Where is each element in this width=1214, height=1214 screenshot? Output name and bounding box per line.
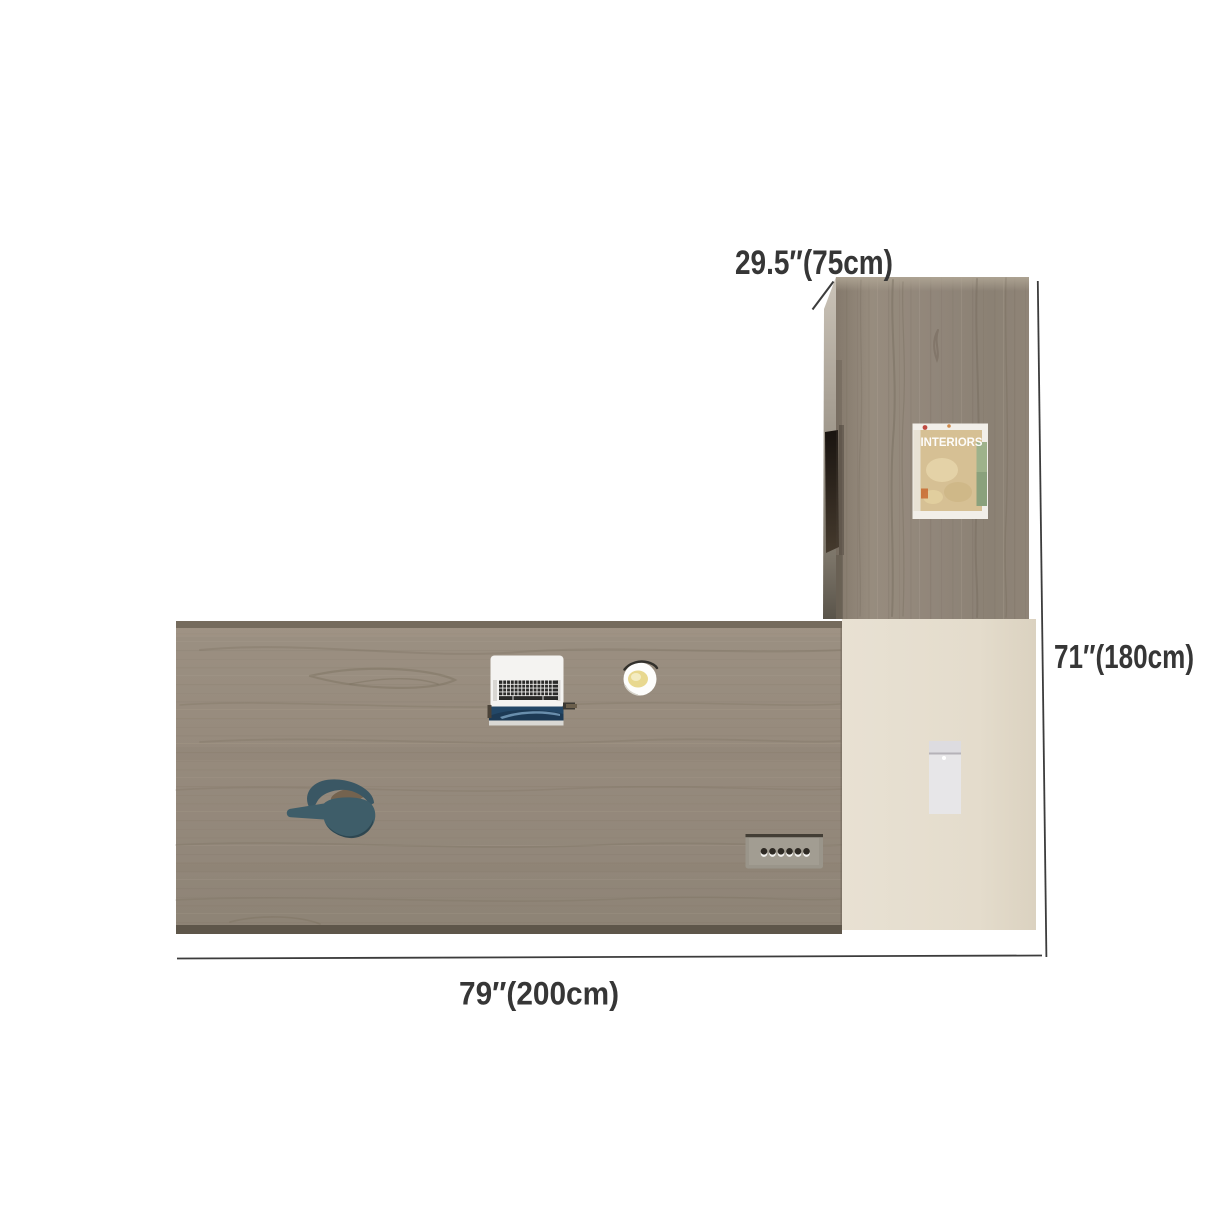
svg-text:INTERIORS: INTERIORS [921,435,983,449]
svg-text:29.5″(75cm): 29.5″(75cm) [735,244,893,282]
svg-text:79″(200cm): 79″(200cm) [459,976,619,1012]
svg-text:71″(180cm): 71″(180cm) [1054,638,1194,675]
